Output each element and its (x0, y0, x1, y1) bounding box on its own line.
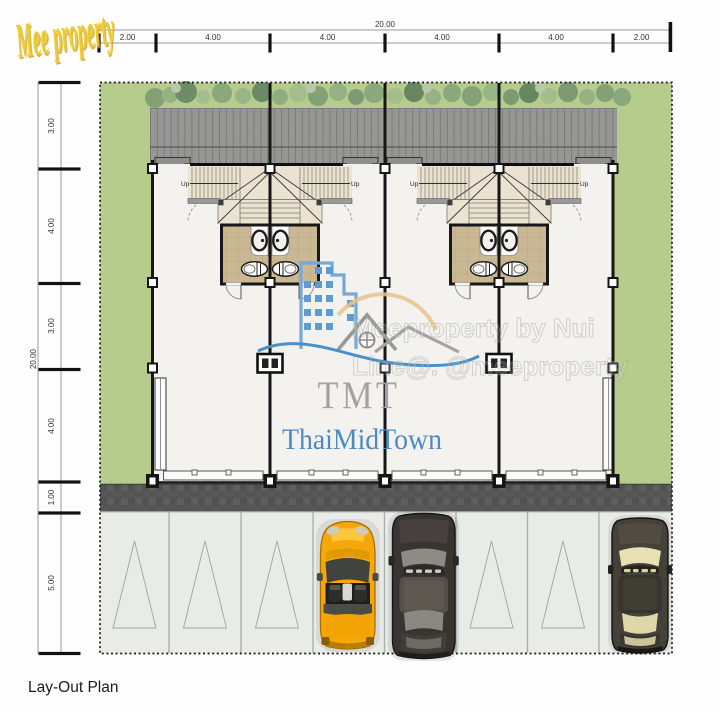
svg-text:5.00: 5.00 (47, 575, 56, 591)
svg-text:Up: Up (181, 181, 190, 188)
svg-text:3.00: 3.00 (47, 318, 56, 334)
svg-text:Up: Up (410, 181, 419, 188)
svg-text:Meeproperty by Nui: Meeproperty by Nui (352, 313, 595, 343)
svg-text:20.00: 20.00 (29, 348, 38, 369)
svg-text:1.00: 1.00 (47, 489, 56, 505)
svg-text:4.00: 4.00 (47, 418, 56, 434)
svg-text:Up: Up (351, 181, 360, 188)
svg-text:ThaiMidTown: ThaiMidTown (282, 423, 442, 456)
svg-text:4.00: 4.00 (47, 218, 56, 234)
svg-text:20.00: 20.00 (375, 20, 396, 29)
svg-text:Up: Up (580, 181, 589, 188)
svg-text:4.00: 4.00 (434, 33, 450, 42)
svg-text:4.00: 4.00 (205, 33, 221, 42)
svg-text:4.00: 4.00 (320, 33, 336, 42)
svg-text:TMT: TMT (318, 374, 401, 417)
svg-text:2.00: 2.00 (634, 33, 650, 42)
svg-text:4.00: 4.00 (548, 33, 564, 42)
svg-text:Lay-Out Plan: Lay-Out Plan (28, 679, 118, 696)
svg-text:2.00: 2.00 (120, 33, 136, 42)
svg-text:3.00: 3.00 (47, 118, 56, 134)
